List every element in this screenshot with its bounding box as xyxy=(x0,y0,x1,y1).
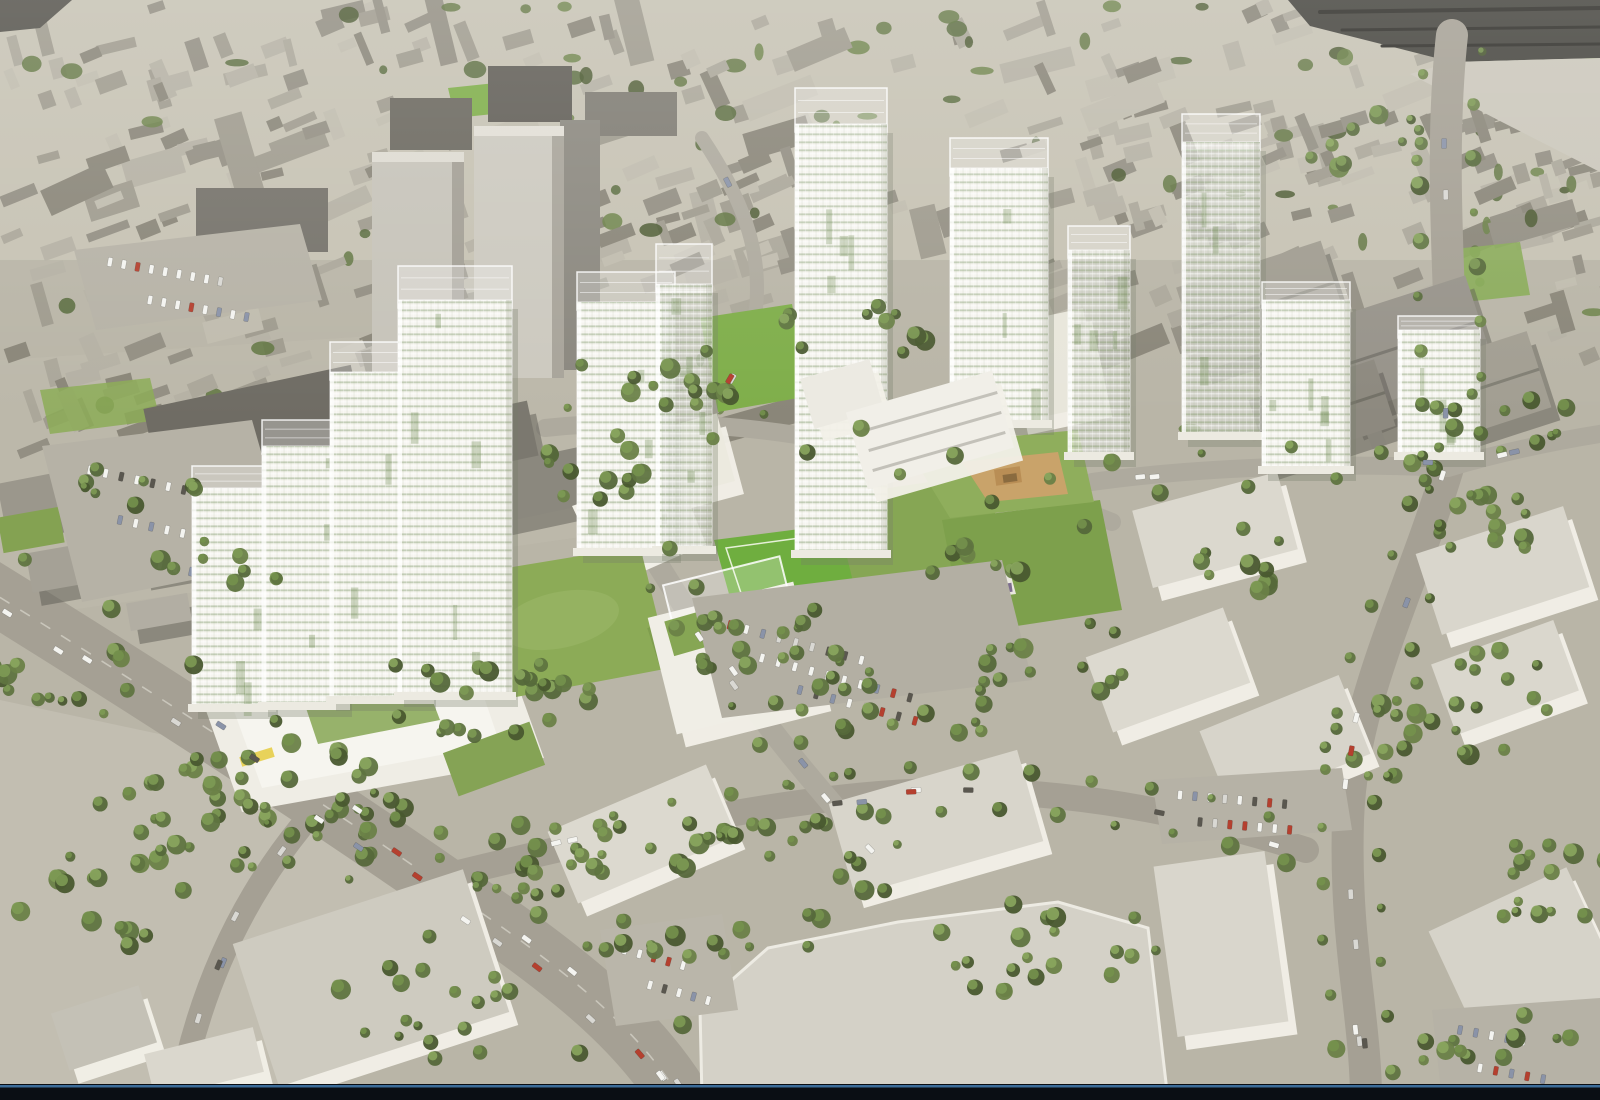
street-trees-crown xyxy=(1378,744,1388,754)
street-trees-crown xyxy=(1467,490,1473,496)
tree-cluster-crown xyxy=(148,774,158,784)
distance-haze xyxy=(0,0,1600,420)
tree-cluster-crown xyxy=(123,787,132,796)
tree-cluster-crown xyxy=(336,792,345,801)
vegetation-streak xyxy=(351,588,358,619)
tree-cluster-crown xyxy=(389,658,398,667)
tree-cluster-crown xyxy=(926,566,935,575)
tree-cluster-crown xyxy=(865,667,871,673)
tree-cluster-crown xyxy=(1404,724,1416,736)
tree-cluster-crown xyxy=(1532,660,1539,667)
tree-cluster-crown xyxy=(1531,906,1542,917)
tree-cluster-crown xyxy=(1449,697,1459,707)
parked-car xyxy=(1227,820,1232,829)
tree-cluster-crown xyxy=(281,771,292,782)
tree-cluster-crown xyxy=(460,686,469,695)
tree-cluster-crown xyxy=(440,719,450,729)
tree-cluster-crown xyxy=(1512,493,1520,501)
street-trees-crown xyxy=(345,875,350,880)
parked-car xyxy=(1272,824,1277,833)
tree-cluster-crown xyxy=(765,851,772,858)
tree-cluster-crown xyxy=(918,705,929,716)
street-trees-crown xyxy=(1024,765,1035,776)
street-trees-crown xyxy=(1264,811,1271,818)
tree-cluster-crown xyxy=(1541,704,1548,711)
street-trees-crown xyxy=(669,620,679,630)
tree-cluster-crown xyxy=(583,942,589,948)
tree-cluster-crown xyxy=(558,490,566,498)
tree-cluster-crown xyxy=(1105,675,1114,684)
tree-cluster-crown xyxy=(509,725,519,735)
tree-cluster-crown xyxy=(515,670,525,680)
traffic xyxy=(1149,474,1159,480)
tree-cluster-crown xyxy=(190,752,199,761)
tree-cluster-crown xyxy=(1544,864,1554,874)
tree-cluster-crown xyxy=(945,545,955,555)
tree-cluster-crown xyxy=(600,471,612,483)
traffic xyxy=(963,788,973,793)
tree-cluster-crown xyxy=(134,825,144,835)
tree-cluster-crown xyxy=(431,672,444,685)
tree-cluster-crown xyxy=(986,644,993,651)
tree-cluster-crown xyxy=(613,820,622,829)
street-trees-crown xyxy=(10,658,20,668)
tree-cluster-crown xyxy=(729,619,739,629)
tree-cluster-crown xyxy=(1455,658,1463,666)
street-trees-crown xyxy=(794,736,803,745)
tree-cluster-crown xyxy=(956,538,967,549)
street-trees-crown xyxy=(1077,519,1087,529)
street-trees-crown xyxy=(1446,542,1453,549)
vegetation-streak xyxy=(687,471,694,483)
tree-cluster-crown xyxy=(583,683,591,691)
tree-cluster-crown xyxy=(1489,519,1500,530)
tree-cluster-crown xyxy=(1496,1049,1507,1060)
wireframe-tower-ghost-base xyxy=(1178,432,1264,440)
street-trees-crown xyxy=(1377,904,1383,910)
tree-cluster-crown xyxy=(728,828,738,838)
tree-cluster-crown xyxy=(1364,771,1370,777)
street-trees-crown xyxy=(1242,480,1251,489)
street-trees-crown xyxy=(739,657,751,669)
street-trees-crown xyxy=(1320,764,1327,771)
tree-cluster-crown xyxy=(424,1035,433,1044)
parked-car xyxy=(1252,797,1257,806)
street-trees-crown xyxy=(853,420,864,431)
tree-cluster-crown xyxy=(233,548,243,558)
wireframe-midrise-base xyxy=(1258,466,1354,474)
street-trees-crown xyxy=(1198,449,1203,454)
tree-cluster-crown xyxy=(360,1028,366,1034)
wireframe-tower-base xyxy=(791,550,891,558)
tree-cluster-crown xyxy=(1530,435,1540,445)
tree-cluster-crown xyxy=(284,827,294,837)
street-trees-crown xyxy=(674,1016,686,1028)
tree-cluster-crown xyxy=(1501,673,1509,681)
street-trees-crown xyxy=(1111,821,1117,827)
tree-cluster-crown xyxy=(621,441,633,453)
tree-cluster-crown xyxy=(1397,741,1407,751)
tree-cluster-crown xyxy=(1005,896,1016,907)
tree-cluster-crown xyxy=(803,908,811,916)
street-trees-crown xyxy=(758,818,769,829)
tree-cluster-crown xyxy=(1320,742,1327,749)
tree-cluster-crown xyxy=(1470,664,1477,671)
street-trees-crown xyxy=(646,584,652,590)
tree-cluster-crown xyxy=(1547,907,1553,913)
tree-cluster-crown xyxy=(1455,1045,1463,1053)
street-trees-crown xyxy=(1328,1040,1339,1051)
tree-cluster-crown xyxy=(1250,581,1262,593)
street-trees-crown xyxy=(609,811,615,817)
tree-cluster-crown xyxy=(151,550,164,563)
wireframe-tower-crown-line xyxy=(195,481,269,482)
tree-cluster-crown xyxy=(82,911,95,924)
tree-cluster-crown xyxy=(1521,509,1527,515)
tree-cluster-crown xyxy=(473,1045,482,1054)
tree-cluster-crown xyxy=(416,963,425,972)
street-trees-crown xyxy=(1317,877,1325,885)
street-trees-crown xyxy=(668,798,674,804)
tree-cluster-crown xyxy=(788,836,795,843)
street-trees-crown xyxy=(185,656,197,668)
tree-cluster-crown xyxy=(1486,504,1496,514)
tree-cluster-crown xyxy=(544,458,550,464)
tree-cluster-crown xyxy=(708,611,718,621)
tree-cluster-crown xyxy=(168,835,180,847)
street-trees-crown xyxy=(423,930,432,939)
tree-cluster-crown xyxy=(395,1032,401,1038)
tree-cluster-crown xyxy=(979,676,986,683)
tree-cluster-crown xyxy=(167,562,175,570)
tree-cluster-crown xyxy=(121,937,132,948)
street-trees-crown xyxy=(936,806,943,813)
street-trees-crown xyxy=(783,780,789,786)
street-trees-crown xyxy=(435,853,441,859)
tree-cluster-crown xyxy=(1564,844,1577,857)
tree-cluster-crown xyxy=(617,914,626,923)
street-trees-crown xyxy=(1418,451,1425,458)
tree-cluster-crown xyxy=(472,996,480,1004)
tree-cluster-crown xyxy=(812,679,823,690)
street-trees-crown xyxy=(985,495,994,504)
tree-cluster-crown xyxy=(248,863,254,869)
tree-cluster-crown xyxy=(512,892,519,899)
vegetation-streak xyxy=(1326,439,1332,461)
tree-cluster-crown xyxy=(1085,619,1091,625)
tree-cluster-crown xyxy=(632,464,645,477)
tree-cluster-crown xyxy=(473,872,483,882)
street-trees-crown xyxy=(611,429,620,438)
tree-cluster-crown xyxy=(428,1051,437,1060)
street-trees-crown xyxy=(1372,848,1381,857)
tree-cluster-crown xyxy=(468,729,477,738)
white-apartment-slab xyxy=(1154,851,1289,1037)
tree-cluster-crown xyxy=(531,888,539,896)
tree-cluster-crown xyxy=(1331,723,1339,731)
street-trees-crown xyxy=(769,696,779,706)
tree-cluster-crown xyxy=(1007,963,1015,971)
street-trees-crown xyxy=(703,832,711,840)
tree-cluster-crown xyxy=(283,856,291,864)
traffic xyxy=(1342,779,1348,790)
aerial-rendering xyxy=(0,0,1600,1100)
tree-cluster-crown xyxy=(1025,667,1032,674)
street-trees-crown xyxy=(1050,807,1060,817)
tree-cluster-crown xyxy=(1011,562,1024,575)
tree-cluster-crown xyxy=(156,845,163,852)
tree-cluster-crown xyxy=(796,704,804,712)
tree-cluster-crown xyxy=(313,831,319,837)
street-trees-crown xyxy=(963,764,974,775)
tree-cluster-crown xyxy=(968,980,978,990)
street-trees-crown xyxy=(646,843,653,850)
traffic xyxy=(1423,460,1433,465)
tree-cluster-crown xyxy=(121,683,130,692)
tree-cluster-crown xyxy=(666,926,679,939)
street-trees-crown xyxy=(1405,642,1414,651)
street-trees-crown xyxy=(99,709,105,715)
tree-cluster-crown xyxy=(795,615,805,625)
tree-cluster-crown xyxy=(1006,643,1012,649)
tree-cluster-crown xyxy=(282,734,294,746)
tree-cluster-crown xyxy=(538,678,546,686)
traffic xyxy=(1362,1038,1368,1048)
tree-cluster-crown xyxy=(745,942,751,948)
wireframe-tower-mullions xyxy=(192,488,272,710)
tree-cluster-crown xyxy=(72,691,82,701)
tree-cluster-crown xyxy=(1527,691,1536,700)
street-trees-crown xyxy=(894,468,902,476)
street-trees-crown xyxy=(1278,854,1290,866)
street-trees-crown xyxy=(1402,496,1412,506)
traffic xyxy=(1348,889,1353,899)
street-trees-crown xyxy=(728,702,733,707)
tree-cluster-crown xyxy=(1446,419,1458,431)
street-trees-crown xyxy=(725,787,734,796)
street-trees-crown xyxy=(1388,550,1394,556)
tree-cluster-crown xyxy=(1492,642,1503,653)
street-trees-crown xyxy=(947,447,958,458)
tree-cluster-crown xyxy=(1125,949,1134,958)
tree-cluster-crown xyxy=(260,802,267,809)
street-trees-crown xyxy=(1419,474,1427,482)
tree-cluster-crown xyxy=(1092,682,1104,694)
tree-cluster-crown xyxy=(58,696,64,702)
street-trees-crown xyxy=(1331,473,1339,481)
tree-cluster-crown xyxy=(211,752,222,763)
traffic xyxy=(1135,474,1145,480)
street-trees-crown xyxy=(1318,823,1324,829)
tree-cluster-crown xyxy=(56,874,68,886)
traffic xyxy=(906,789,916,794)
street-trees-crown xyxy=(1104,454,1115,465)
vegetation-streak xyxy=(309,635,315,648)
tree-cluster-crown xyxy=(1450,498,1461,509)
tree-cluster-crown xyxy=(512,816,524,828)
street-trees-crown xyxy=(1208,794,1213,799)
street-trees-crown xyxy=(1318,935,1325,942)
street-trees-crown xyxy=(844,768,851,775)
wireframe-tower-base xyxy=(394,692,516,700)
tree-cluster-crown xyxy=(555,675,566,686)
street-trees-crown xyxy=(1368,795,1377,804)
parked-car xyxy=(1197,817,1202,826)
tree-cluster-crown xyxy=(1578,908,1588,918)
tree-cluster-crown xyxy=(271,573,278,580)
tree-cluster-crown xyxy=(1129,912,1137,920)
tree-cluster-crown xyxy=(188,481,197,490)
tree-cluster-crown xyxy=(1508,868,1516,876)
street-trees-crown xyxy=(663,541,673,551)
tree-cluster-crown xyxy=(733,641,744,652)
tree-cluster-crown xyxy=(951,961,957,967)
tree-cluster-crown xyxy=(1011,928,1023,940)
tree-cluster-crown xyxy=(593,819,602,828)
street-trees-crown xyxy=(1169,829,1175,835)
tree-cluster-crown xyxy=(139,476,146,483)
street-trees-crown xyxy=(18,553,27,562)
tree-cluster-crown xyxy=(1028,969,1039,980)
street-trees-crown xyxy=(810,813,820,823)
tree-cluster-crown xyxy=(1515,529,1527,541)
tree-cluster-crown xyxy=(1507,1029,1519,1041)
wireframe-tower-ghost-base xyxy=(1064,452,1134,460)
tree-cluster-crown xyxy=(1373,705,1381,713)
tree-cluster-crown xyxy=(534,658,543,667)
traffic xyxy=(1353,1024,1359,1034)
tree-cluster-crown xyxy=(332,980,345,993)
tree-cluster-crown xyxy=(93,797,102,806)
tree-cluster-crown xyxy=(458,1022,467,1031)
tree-cluster-crown xyxy=(1418,1034,1428,1044)
street-trees-crown xyxy=(993,802,1002,811)
vegetation-streak xyxy=(254,609,262,631)
tree-cluster-crown xyxy=(707,935,718,946)
tree-cluster-crown xyxy=(690,834,703,847)
street-trees-crown xyxy=(904,761,912,769)
street-trees-crown xyxy=(473,882,479,888)
street-trees-crown xyxy=(1285,441,1293,449)
tree-cluster-crown xyxy=(360,757,372,769)
tree-cluster-crown xyxy=(198,554,204,560)
tree-cluster-crown xyxy=(239,846,247,854)
tree-cluster-crown xyxy=(615,934,627,946)
tree-cluster-crown xyxy=(414,1021,420,1027)
street-trees-crown xyxy=(1044,473,1052,481)
street-trees-crown xyxy=(1345,652,1352,659)
vegetation-streak xyxy=(472,441,481,468)
street-trees-crown xyxy=(1392,696,1398,702)
tree-cluster-crown xyxy=(491,991,498,998)
tree-cluster-crown xyxy=(390,811,400,821)
tree-cluster-crown xyxy=(575,848,584,857)
tree-cluster-crown xyxy=(790,646,799,655)
tree-cluster-crown xyxy=(563,463,573,473)
street-trees-crown xyxy=(1086,776,1094,784)
tree-cluster-crown xyxy=(90,463,99,472)
street-trees-crown xyxy=(800,445,810,455)
tree-cluster-crown xyxy=(1404,454,1415,465)
tree-cluster-crown xyxy=(360,822,371,833)
tree-cluster-crown xyxy=(392,710,401,719)
parked-car xyxy=(1192,792,1197,801)
tree-cluster-crown xyxy=(593,492,603,502)
parked-car xyxy=(1242,821,1247,830)
tree-cluster-crown xyxy=(231,858,240,867)
tree-cluster-crown xyxy=(528,838,540,850)
tree-cluster-crown xyxy=(1514,854,1525,865)
tree-cluster-crown xyxy=(808,603,817,612)
tree-cluster-crown xyxy=(1543,839,1552,848)
layer-atmosphere xyxy=(0,0,1600,420)
street-trees-crown xyxy=(352,769,361,778)
traffic xyxy=(1353,939,1359,949)
tree-cluster-crown xyxy=(747,818,756,827)
street-trees-crown xyxy=(1152,485,1163,496)
parked-car xyxy=(1177,790,1182,799)
street-trees-crown xyxy=(489,833,500,844)
tree-cluster-crown xyxy=(1407,704,1419,716)
tree-cluster-crown xyxy=(826,671,835,680)
tree-cluster-crown xyxy=(1204,570,1210,576)
tree-cluster-crown xyxy=(1014,638,1027,651)
tree-cluster-crown xyxy=(325,810,334,819)
tree-cluster-crown xyxy=(976,685,983,692)
screenshot-stage xyxy=(0,0,1600,1100)
tree-cluster-crown xyxy=(383,792,393,802)
tree-cluster-crown xyxy=(1046,907,1059,920)
tree-cluster-crown xyxy=(236,772,244,780)
tree-cluster-crown xyxy=(1111,945,1120,954)
tree-cluster-crown xyxy=(976,696,987,707)
tree-cluster-crown xyxy=(1470,646,1480,656)
street-trees-crown xyxy=(586,858,597,869)
tree-cluster-crown xyxy=(1517,1008,1527,1018)
tree-cluster-crown xyxy=(1512,907,1518,913)
tree-cluster-crown xyxy=(862,678,872,688)
tree-cluster-crown xyxy=(979,655,990,666)
tree-cluster-crown xyxy=(1437,1042,1449,1054)
tree-cluster-crown xyxy=(1383,772,1389,778)
street-trees-crown xyxy=(1382,1010,1390,1018)
tree-cluster-crown xyxy=(1391,709,1399,717)
tree-cluster-crown xyxy=(91,488,97,494)
street-trees-crown xyxy=(893,840,899,846)
street-trees-crown xyxy=(1425,593,1431,599)
tree-cluster-crown xyxy=(1452,726,1458,732)
tree-cluster-crown xyxy=(81,483,87,489)
tree-cluster-crown xyxy=(996,983,1007,994)
vegetation-streak xyxy=(385,454,391,484)
street-trees-crown xyxy=(572,1045,583,1056)
street-trees-crown xyxy=(270,715,278,723)
tree-cluster-crown xyxy=(1496,446,1503,453)
tree-cluster-crown xyxy=(45,693,51,699)
street-trees-crown xyxy=(1222,837,1234,849)
street-trees-crown xyxy=(1145,782,1154,791)
tree-cluster-crown xyxy=(66,852,72,858)
street-trees-crown xyxy=(829,772,835,778)
tree-cluster-crown xyxy=(1563,1030,1573,1040)
bottom-border-blue-line xyxy=(0,1085,1600,1088)
street-trees-crown xyxy=(528,865,538,875)
tree-cluster-crown xyxy=(422,664,431,673)
street-trees-crown xyxy=(434,826,443,835)
tree-cluster-crown xyxy=(1419,1055,1425,1061)
tree-cluster-crown xyxy=(862,703,873,714)
tree-cluster-crown xyxy=(541,445,552,456)
